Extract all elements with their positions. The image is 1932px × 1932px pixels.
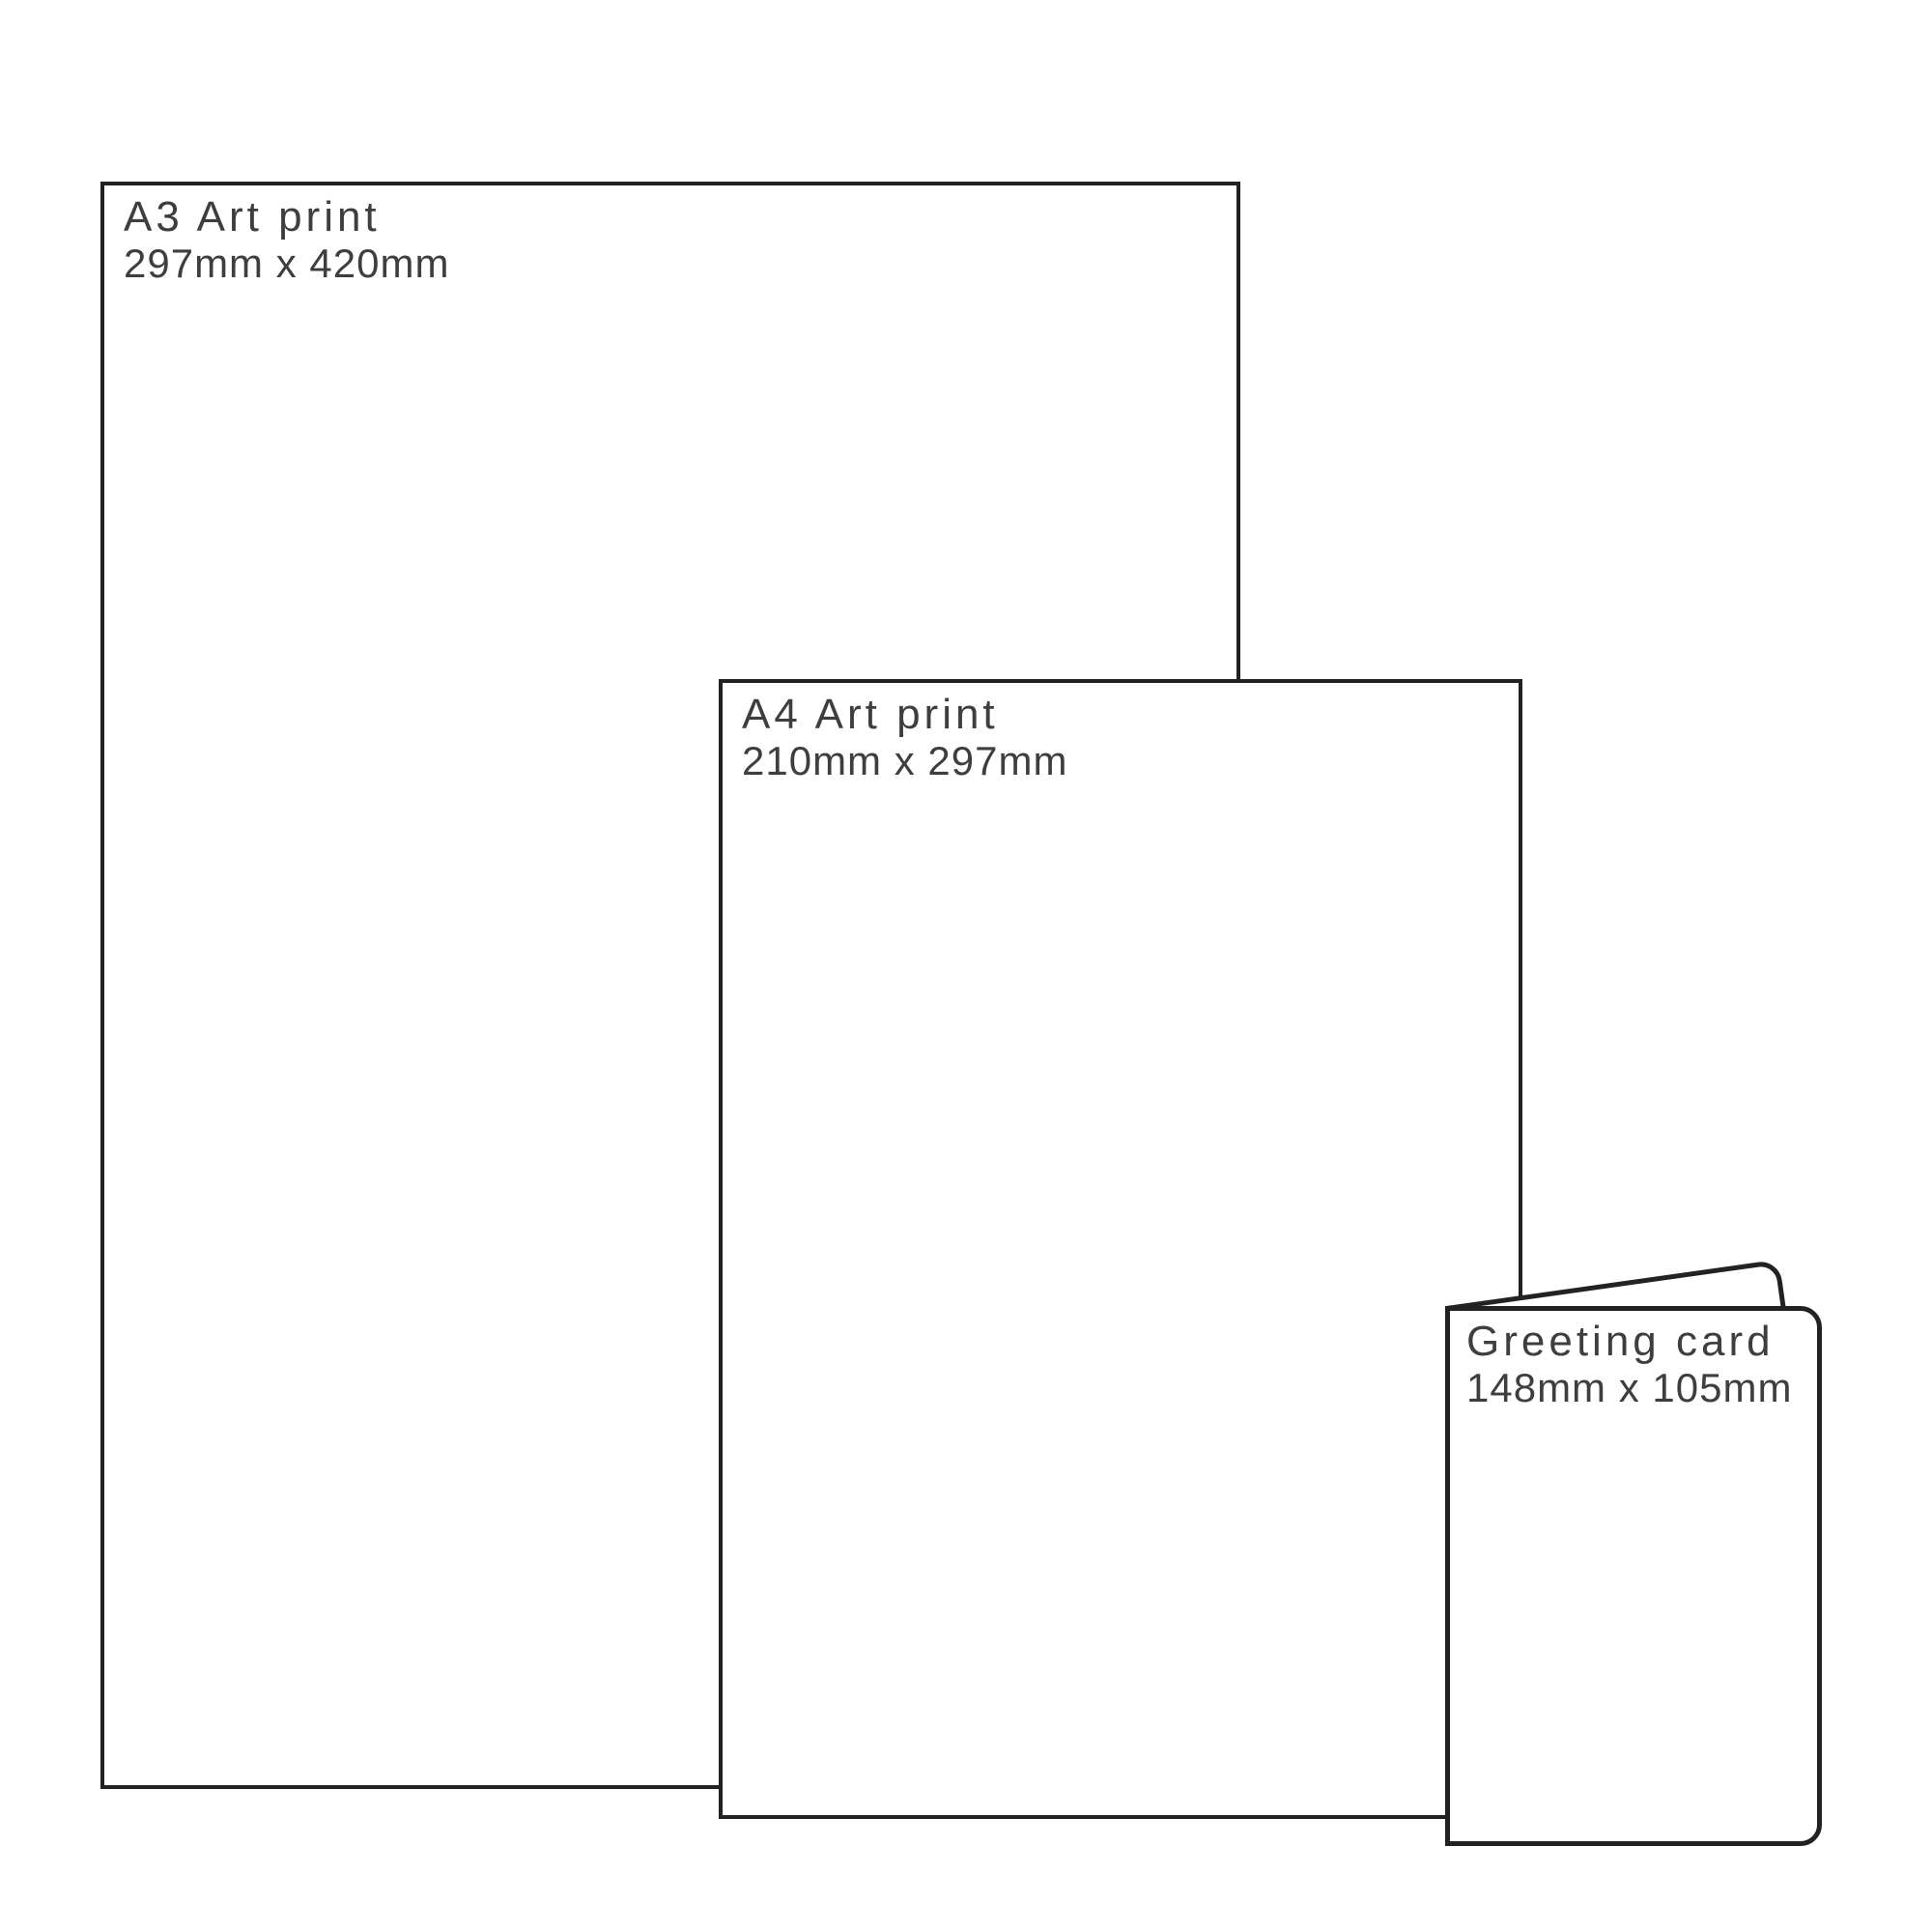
a3-title: A3 Art print [124,193,449,241]
a3-dimensions: 297mm x 420mm [124,241,449,287]
a4-dimensions: 210mm x 297mm [742,738,1067,784]
a4-label: A4 Art print 210mm x 297mm [742,691,1067,784]
greeting-card-title: Greeting card [1466,1318,1792,1365]
greeting-card-label: Greeting card 148mm x 105mm [1466,1318,1792,1411]
a4-title: A4 Art print [742,691,1067,738]
size-comparison-diagram: A3 Art print 297mm x 420mm A4 Art print … [0,0,1932,1932]
greeting-card-panel: Greeting card 148mm x 105mm [1445,1306,1822,1846]
a4-print-panel: A4 Art print 210mm x 297mm [719,679,1522,1819]
a3-label: A3 Art print 297mm x 420mm [124,193,449,287]
greeting-card-dimensions: 148mm x 105mm [1466,1365,1792,1411]
